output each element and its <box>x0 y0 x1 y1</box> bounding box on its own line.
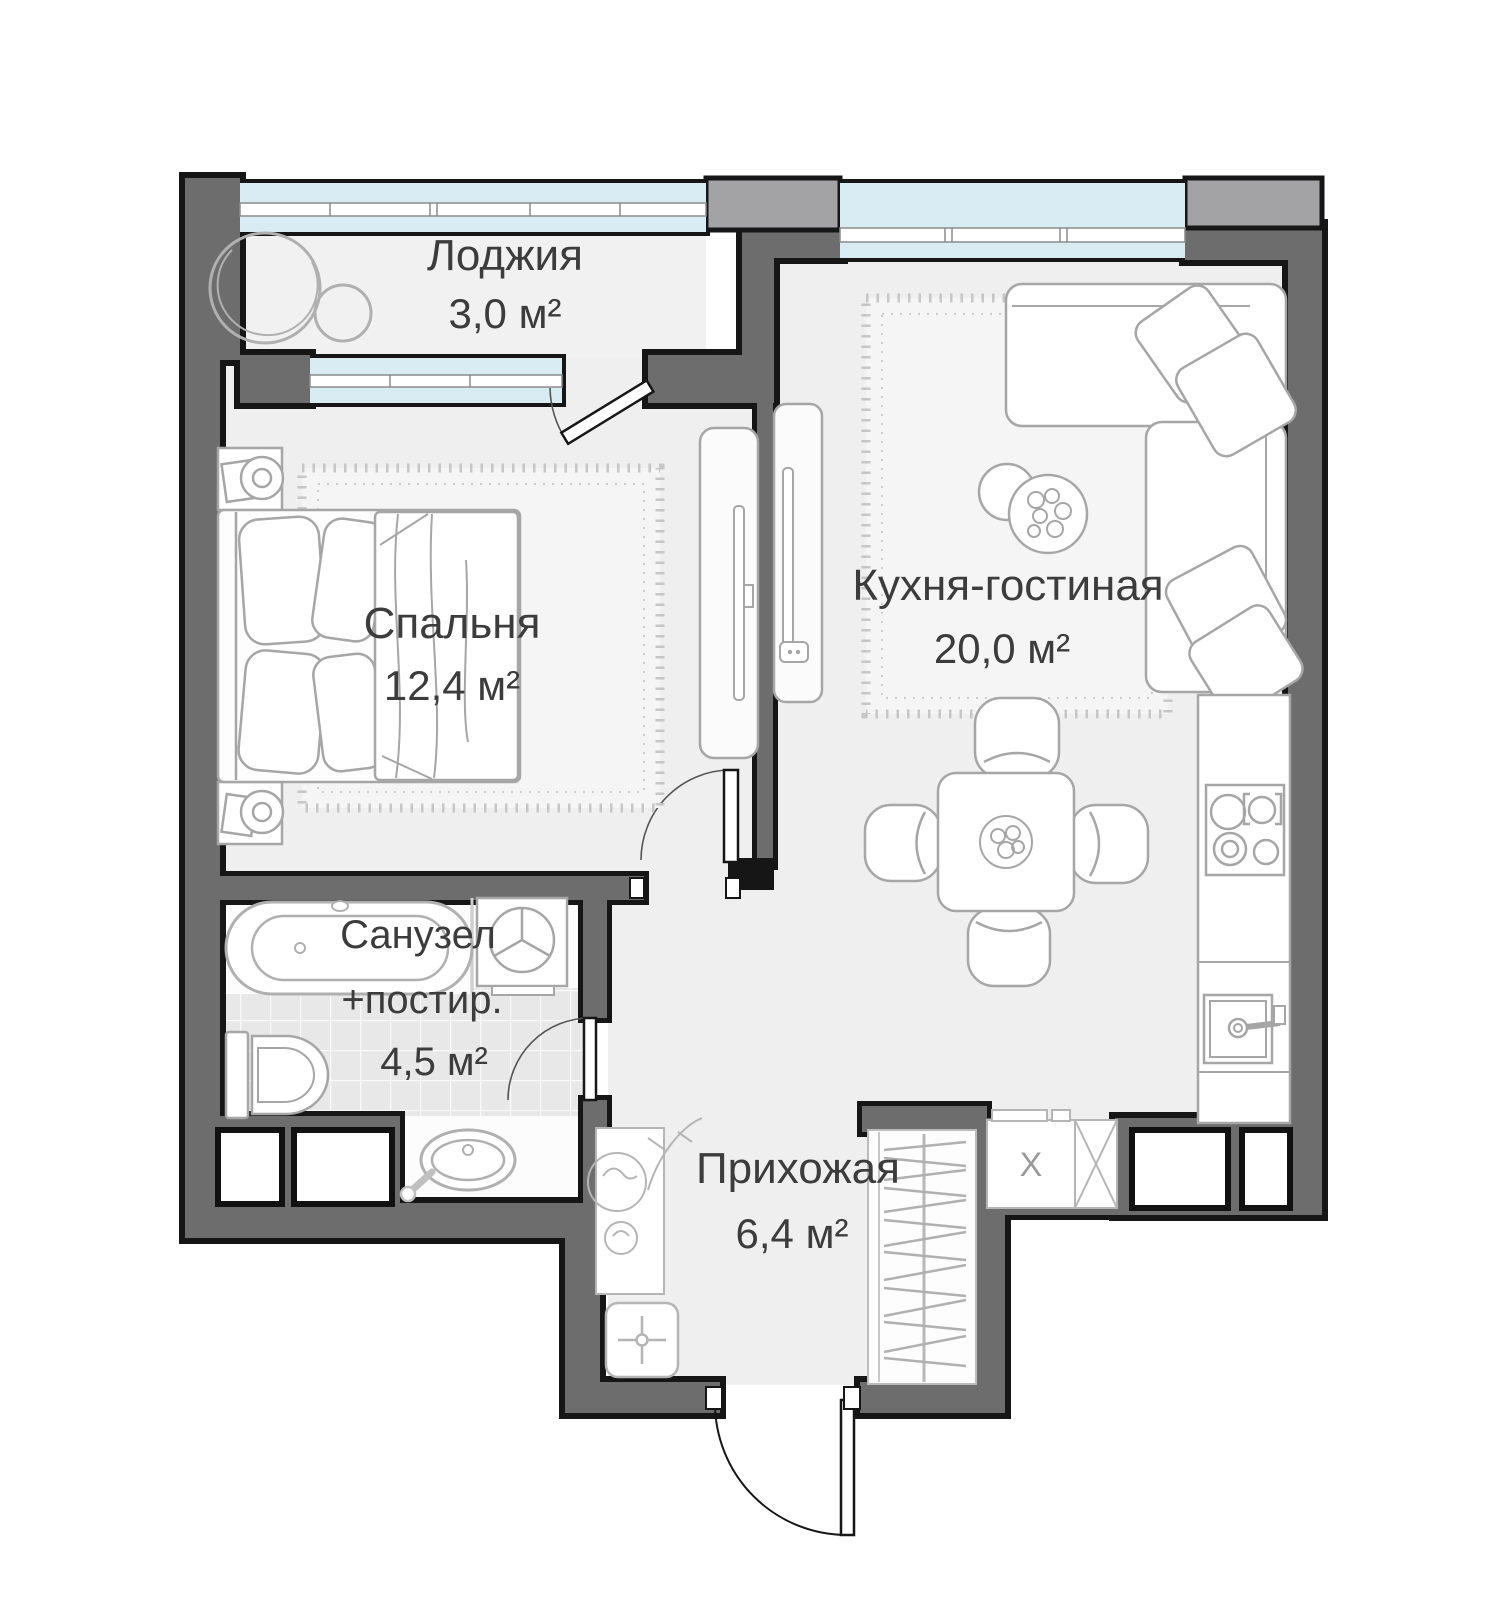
kitchen-tv-console <box>774 404 822 702</box>
hallway-label: Прихожая <box>696 1144 900 1193</box>
bathroom-area: 4,5 м² <box>380 1040 488 1084</box>
column-top-right <box>1185 178 1322 228</box>
kitchen-tv-icon <box>783 468 793 660</box>
loggia-top-window <box>240 183 706 232</box>
entrance-door-leaf <box>841 1400 854 1535</box>
toilet <box>226 1032 328 1118</box>
shaft-box <box>294 1130 392 1204</box>
bedroom-area: 12,4 м² <box>384 662 520 709</box>
hall-cabinet: X <box>987 1110 1075 1208</box>
bedroom-tv-icon <box>734 506 744 700</box>
kitchen-living-area: 20,0 м² <box>934 625 1070 672</box>
floor-plan-svg: X Лоджия 3,0 м² Спальня 12,4 м² Кухня-го… <box>0 0 1504 1600</box>
bedroom-door-leaf <box>724 770 738 862</box>
column-top-middle <box>706 178 840 230</box>
socket-icon <box>780 642 808 662</box>
floor-plan-page: X Лоджия 3,0 м² Спальня 12,4 м² Кухня-го… <box>0 0 1504 1600</box>
loggia-area: 3,0 м² <box>449 290 562 337</box>
entrance-door <box>706 1387 860 1535</box>
kitchen-sink <box>1204 995 1285 1063</box>
kitchen-living-label: Кухня-гостиная <box>852 561 1163 610</box>
entrance-door-jamb <box>706 1387 722 1409</box>
bedroom-door-jamb <box>630 878 644 898</box>
hallway-area: 6,4 м² <box>736 1210 849 1257</box>
bedroom-label: Спальня <box>364 599 541 648</box>
pouf <box>606 1303 678 1377</box>
kitchen-counter <box>1198 695 1290 1123</box>
vent-shaft-cross <box>1075 1120 1117 1208</box>
bedroom-door-jamb <box>726 878 740 898</box>
kitchen-window <box>840 183 1185 258</box>
bedroom-tv-console <box>700 428 758 758</box>
bathroom-label-line2: +постир. <box>341 978 502 1022</box>
nightstand-bottom <box>218 782 283 844</box>
bathroom-label-line1: Санузел <box>340 913 496 957</box>
tv-mount <box>744 585 753 607</box>
nightstand-top <box>218 448 283 510</box>
cabinet-x-mark: X <box>1020 1146 1043 1184</box>
bathroom-door-leaf <box>584 1018 596 1100</box>
entrance-door-jamb <box>844 1387 860 1409</box>
bedroom-loggia-window <box>310 358 562 403</box>
loggia-label: Лоджия <box>427 231 583 280</box>
shaft-box <box>1132 1130 1228 1208</box>
cooktop <box>1206 785 1284 875</box>
fruit-bowl <box>980 816 1032 868</box>
shaft-box <box>218 1130 282 1204</box>
shaft-box <box>1242 1130 1290 1208</box>
